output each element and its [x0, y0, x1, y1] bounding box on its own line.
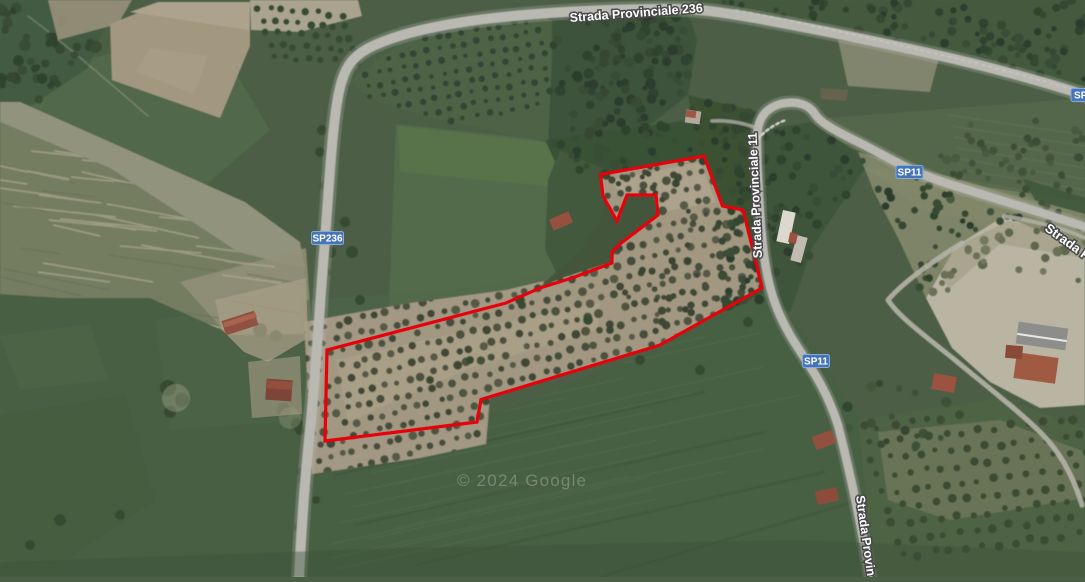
svg-text:SP11: SP11: [898, 168, 922, 179]
svg-text:SP236: SP236: [312, 234, 342, 245]
svg-text:SP11: SP11: [804, 357, 828, 368]
svg-text:SP11: SP11: [1074, 91, 1085, 102]
svg-text:© 2024 Google: © 2024 Google: [457, 471, 587, 490]
